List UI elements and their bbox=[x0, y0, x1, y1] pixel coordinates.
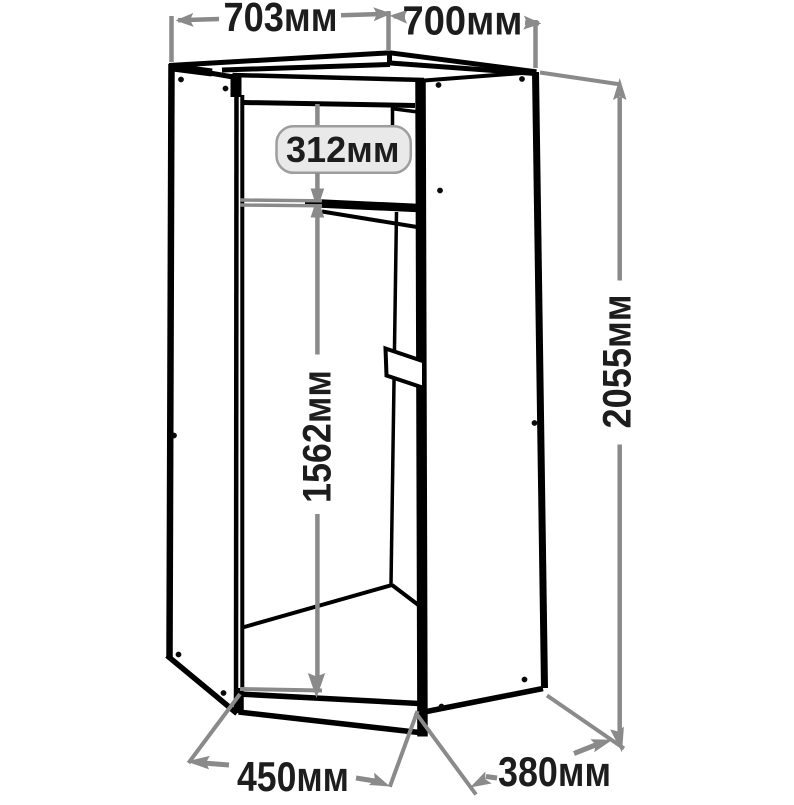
svg-text:380мм: 380мм bbox=[498, 748, 611, 795]
svg-text:312мм: 312мм bbox=[286, 129, 400, 170]
svg-text:700мм: 700мм bbox=[403, 0, 523, 44]
svg-text:1562мм: 1562мм bbox=[296, 370, 340, 503]
svg-text:703мм: 703мм bbox=[224, 0, 338, 40]
svg-text:450мм: 450мм bbox=[237, 753, 349, 800]
svg-text:2055мм: 2055мм bbox=[596, 295, 640, 429]
